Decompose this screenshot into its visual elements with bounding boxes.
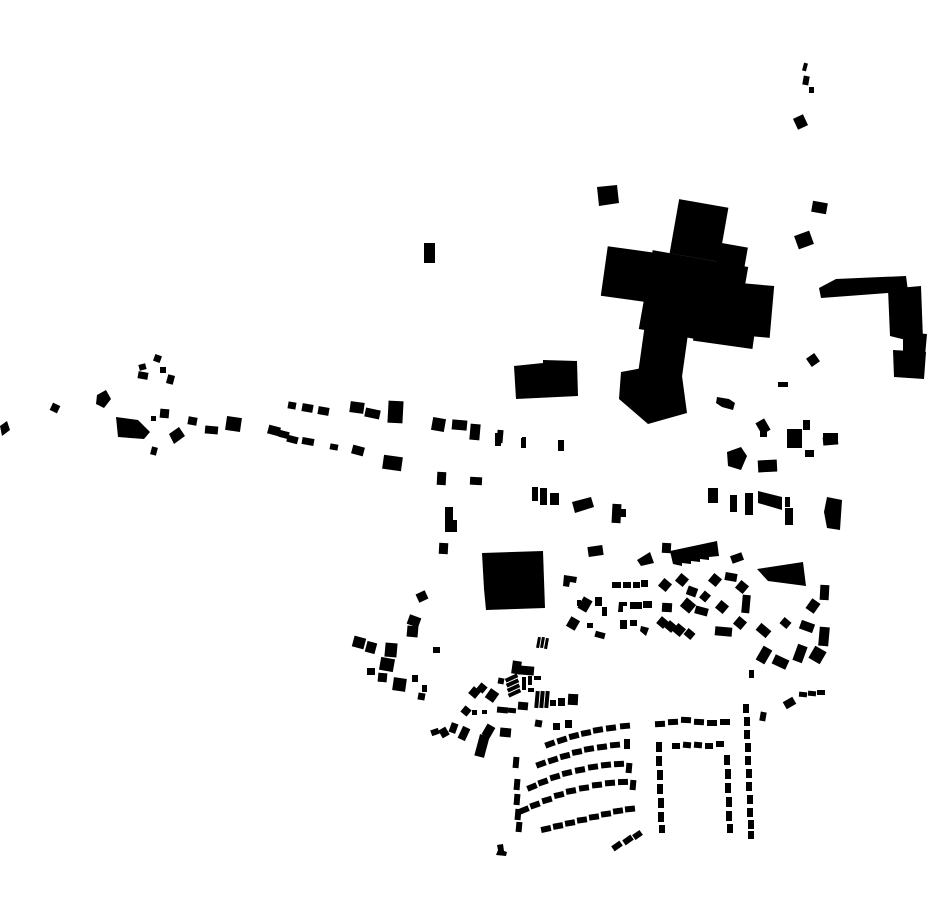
- building-footprint: [352, 636, 366, 650]
- building-footprint: [518, 702, 529, 711]
- building-footprint: [287, 401, 296, 409]
- building-footprint: [498, 678, 505, 685]
- building-footprint: [544, 691, 549, 708]
- building-footprint: [611, 841, 623, 852]
- building-footprint: [730, 552, 744, 564]
- building-footprint: [422, 685, 427, 692]
- building-footprint: [364, 408, 381, 420]
- building-footprint: [379, 657, 395, 672]
- building-footprint: [758, 491, 782, 510]
- building-footprint: [553, 723, 560, 730]
- building-footprint: [715, 600, 729, 614]
- building-footprint: [529, 801, 540, 810]
- building-footprint: [675, 573, 689, 587]
- building-footprint: [534, 691, 539, 708]
- building-footprint: [412, 675, 418, 682]
- building-footprint: [547, 756, 558, 765]
- building-footprint: [424, 243, 435, 263]
- building-footprint: [301, 403, 313, 413]
- building-footprint: [792, 644, 807, 663]
- building-footprint: [794, 231, 814, 250]
- building-footprint: [437, 472, 447, 485]
- building-footprint: [416, 590, 429, 602]
- building-footprint: [581, 729, 592, 737]
- building-footprint: [153, 354, 162, 363]
- building-footprint: [672, 743, 680, 749]
- building-footprint: [588, 763, 599, 770]
- building-footprint: [349, 401, 364, 414]
- building-footprint: [630, 620, 637, 626]
- building-footprint: [417, 692, 425, 700]
- building-footprint: [641, 580, 648, 587]
- building-footprint: [657, 784, 663, 794]
- building-footprint: [622, 835, 634, 846]
- building-footprint: [727, 447, 747, 470]
- building-footprint: [756, 623, 772, 638]
- building-footprint: [587, 545, 603, 557]
- building-footprint: [733, 616, 747, 630]
- building-footprint: [618, 779, 628, 785]
- building-footprint: [694, 719, 704, 726]
- building-footprint: [727, 824, 733, 833]
- building-footprint: [686, 586, 698, 598]
- building-footprint: [705, 743, 713, 749]
- building-footprint: [799, 620, 815, 633]
- building-footprint: [707, 720, 717, 726]
- building-footprint: [620, 620, 627, 629]
- building-footprint: [508, 708, 516, 714]
- building-footprint: [624, 739, 630, 749]
- building-footprint: [482, 710, 487, 714]
- building-footprint: [301, 437, 314, 446]
- building-footprint: [716, 741, 724, 747]
- building-footprint: [587, 623, 593, 628]
- building-footprint: [50, 403, 61, 414]
- building-footprint: [495, 433, 501, 446]
- building-footprint: [643, 601, 652, 608]
- building-footprint: [785, 508, 793, 525]
- building-footprint: [566, 616, 580, 631]
- building-footprint: [534, 719, 542, 727]
- building-footprint: [787, 429, 802, 448]
- building-footprint: [805, 598, 820, 614]
- building-footprint: [785, 497, 790, 507]
- building-footprint: [572, 748, 583, 756]
- building-footprint: [720, 719, 730, 725]
- building-footprint: [741, 595, 751, 614]
- building-footprint: [630, 780, 637, 790]
- building-footprint: [744, 717, 750, 726]
- building-footprint: [528, 688, 534, 692]
- building-footprint: [541, 796, 552, 805]
- building-footprint: [626, 763, 633, 773]
- building-footprint: [610, 742, 620, 749]
- building-footprint: [597, 185, 619, 206]
- building-footprint: [528, 676, 532, 685]
- building-footprint: [893, 350, 926, 379]
- building-footprint: [772, 654, 790, 669]
- building-footprint: [632, 830, 643, 840]
- building-footprint: [160, 367, 166, 373]
- building-footprint: [439, 543, 449, 554]
- building-footprint: [205, 425, 219, 434]
- building-footprint: [756, 646, 773, 665]
- building-footprint: [662, 543, 672, 553]
- building-footprint: [614, 761, 624, 768]
- building-footprint: [540, 637, 545, 648]
- building-footprint: [778, 382, 788, 387]
- building-footprint: [550, 493, 559, 505]
- building-footprint: [759, 712, 766, 722]
- building-footprint: [458, 726, 471, 741]
- building-footprint: [746, 782, 752, 791]
- building-footprint: [670, 541, 719, 566]
- building-footprint: [680, 597, 696, 613]
- building-footprint: [497, 707, 508, 714]
- building-footprint: [568, 694, 579, 706]
- building-footprint: [805, 450, 814, 457]
- building-footprint: [658, 578, 672, 592]
- building-footprint: [802, 63, 808, 72]
- building-footprint: [559, 752, 570, 760]
- building-footprint: [169, 427, 185, 444]
- building-footprint: [522, 677, 526, 690]
- building-footprint: [553, 822, 564, 830]
- building-footprint: [445, 507, 453, 522]
- building-footprint: [659, 825, 665, 833]
- building-footprint: [745, 493, 753, 515]
- building-footprint: [534, 676, 541, 680]
- building-footprint: [138, 363, 146, 371]
- building-footprint: [431, 417, 446, 432]
- building-footprint: [544, 638, 549, 649]
- building-footprint: [568, 732, 579, 740]
- building-footprint: [535, 759, 546, 768]
- building-footprint: [724, 572, 737, 582]
- building-footprint: [225, 416, 242, 432]
- building-footprint: [452, 419, 468, 430]
- building-footprint: [116, 417, 150, 439]
- building-footprint: [96, 390, 111, 408]
- building-footprint: [725, 769, 731, 779]
- building-footprint: [539, 691, 544, 708]
- building-footprint: [485, 688, 500, 703]
- building-footprint: [715, 626, 733, 636]
- building-footprint: [460, 705, 471, 716]
- building-footprint: [818, 627, 830, 647]
- building-footprint: [658, 812, 664, 822]
- building-footprint: [716, 243, 748, 271]
- building-footprint: [532, 487, 538, 501]
- building-footprint: [633, 582, 640, 588]
- building-footprint: [694, 605, 709, 616]
- building-footprint: [793, 114, 808, 130]
- building-footprint: [286, 435, 298, 445]
- building-footprint: [474, 734, 489, 758]
- building-footprint: [438, 727, 449, 739]
- building-footprint: [694, 742, 702, 749]
- building-footprint: [623, 582, 631, 588]
- building-footprint: [748, 831, 754, 839]
- building-footprint: [166, 374, 175, 385]
- building-footprint: [558, 440, 564, 451]
- building-footprint: [553, 791, 564, 799]
- building-footprint: [594, 631, 605, 639]
- building-footprint: [888, 286, 923, 340]
- building-footprint: [799, 692, 807, 698]
- building-footprint: [549, 773, 560, 782]
- building-footprint: [656, 756, 662, 766]
- building-footprint: [514, 794, 521, 805]
- building-footprint: [537, 778, 548, 787]
- building-footprint: [745, 756, 751, 765]
- building-footprint: [747, 795, 753, 804]
- building-footprint: [620, 723, 630, 730]
- building-footprint: [469, 424, 480, 441]
- building-footprint: [597, 743, 608, 750]
- building-footprint: [605, 780, 615, 787]
- building-footprint: [387, 401, 403, 424]
- building-footprint: [330, 443, 339, 450]
- building-footprint: [540, 488, 547, 505]
- building-footprint: [758, 460, 778, 473]
- building-footprint: [550, 700, 556, 706]
- building-footprint: [593, 726, 604, 733]
- building-footprint: [820, 585, 830, 600]
- building-footprint: [430, 728, 440, 736]
- building-footprint: [433, 647, 440, 653]
- building-footprint: [755, 418, 770, 434]
- building-footprint: [824, 497, 842, 530]
- building-footprint: [708, 573, 722, 587]
- building-footprint: [803, 420, 810, 430]
- building-footprint: [606, 724, 617, 731]
- building-footprint: [500, 728, 512, 738]
- building-footprint: [407, 626, 419, 638]
- building-footprint: [592, 781, 603, 788]
- building-footprint: [640, 626, 649, 636]
- building-footprint: [802, 76, 809, 86]
- building-footprint: [808, 691, 816, 697]
- building-footprint: [699, 590, 711, 602]
- building-footprint: [160, 409, 170, 419]
- building-footprint: [187, 416, 197, 425]
- building-footprint: [514, 779, 521, 790]
- building-footprint: [482, 551, 545, 610]
- building-footprint: [150, 446, 158, 455]
- building-footprint: [584, 745, 595, 752]
- building-footprint: [470, 477, 482, 486]
- building-footprint: [783, 697, 797, 709]
- building-footprint: [625, 805, 636, 812]
- building-footprint: [743, 704, 749, 713]
- building-footprint: [748, 820, 754, 829]
- building-footprint: [637, 552, 654, 566]
- building-footprint: [472, 710, 477, 715]
- building-footprint: [563, 575, 577, 587]
- building-footprint: [518, 665, 535, 675]
- building-footprint: [566, 787, 577, 795]
- building-footprint: [613, 807, 624, 814]
- building-footprint: [662, 603, 672, 613]
- building-footprint: [745, 743, 751, 752]
- building-footprint: [579, 784, 590, 791]
- building-footprint: [577, 600, 581, 606]
- building-footprint: [630, 602, 642, 609]
- building-footprint: [565, 720, 572, 728]
- building-footprint: [817, 690, 825, 695]
- building-footprint: [561, 769, 572, 777]
- building-footprint: [658, 798, 664, 808]
- figure-ground-map-canvas: [0, 0, 930, 924]
- building-footprint: [513, 757, 520, 768]
- building-footprint: [724, 755, 730, 765]
- building-footprint: [657, 770, 663, 780]
- building-footprint: [681, 717, 691, 724]
- figure-ground-map: [0, 0, 930, 924]
- building-footprint: [808, 646, 826, 665]
- building-footprint: [725, 783, 731, 793]
- building-footprint: [757, 562, 806, 586]
- building-footprint: [151, 416, 156, 421]
- building-footprint: [378, 673, 388, 683]
- building-footprint: [602, 607, 607, 616]
- building-footprint: [449, 722, 459, 734]
- building-footprint: [317, 406, 329, 416]
- building-footprint: [612, 582, 621, 588]
- building-footprint: [809, 87, 814, 93]
- building-footprint: [351, 445, 365, 457]
- building-footprint: [445, 520, 457, 532]
- building-footprint: [655, 721, 665, 728]
- building-footprint: [137, 371, 148, 380]
- building-footprint: [735, 580, 749, 594]
- building-footprint: [708, 488, 718, 503]
- building-footprint: [544, 739, 555, 748]
- building-footprint: [572, 497, 594, 513]
- building-footprint: [749, 670, 754, 678]
- building-footprint: [365, 641, 378, 654]
- building-footprint: [516, 822, 523, 832]
- building-footprint: [779, 617, 791, 629]
- building-footprint: [618, 509, 626, 517]
- building-footprint: [618, 602, 627, 612]
- building-footprint: [521, 438, 526, 448]
- building-footprint: [730, 495, 737, 512]
- building-footprint: [565, 819, 576, 826]
- building-footprint: [656, 742, 662, 752]
- building-footprint: [536, 637, 541, 648]
- building-footprint: [806, 353, 820, 367]
- building-footprint: [526, 782, 538, 791]
- building-footprint: [619, 361, 687, 424]
- building-footprint: [716, 397, 735, 410]
- building-footprint: [558, 698, 565, 706]
- building-footprint: [367, 668, 375, 675]
- building-footprint: [744, 730, 750, 739]
- building-footprint: [746, 769, 752, 778]
- building-footprint: [668, 719, 678, 726]
- building-footprint: [382, 455, 403, 472]
- building-footprint: [392, 677, 407, 692]
- building-footprint: [683, 742, 691, 749]
- building-footprint: [540, 825, 551, 833]
- building-footprint: [496, 844, 507, 856]
- building-footprint: [726, 797, 732, 807]
- building-footprint: [601, 761, 612, 768]
- building-footprint: [0, 421, 10, 436]
- building-footprint: [515, 809, 522, 820]
- building-footprint: [577, 816, 588, 823]
- building-footprint: [556, 736, 567, 745]
- building-footprint: [726, 811, 732, 821]
- building-footprint: [589, 813, 600, 820]
- building-footprint: [811, 201, 828, 214]
- building-footprint: [384, 643, 397, 658]
- building-footprint: [747, 808, 753, 817]
- building-footprint: [575, 766, 586, 774]
- building-footprint: [514, 360, 578, 399]
- building-footprint: [595, 597, 602, 606]
- building-footprint: [601, 810, 612, 817]
